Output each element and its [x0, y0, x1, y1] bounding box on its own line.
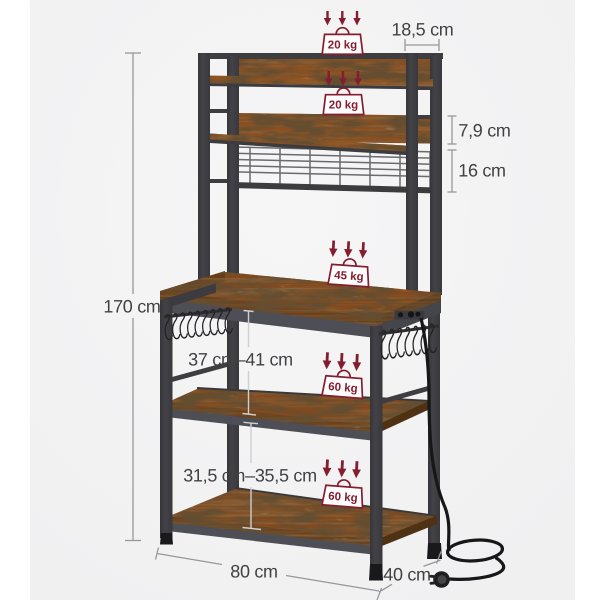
svg-text:60 kg: 60 kg	[328, 381, 358, 395]
svg-text:170 cm: 170 cm	[103, 297, 160, 317]
svg-text:20 kg: 20 kg	[329, 100, 358, 112]
svg-text:60 kg: 60 kg	[328, 490, 358, 504]
svg-text:18,5 cm: 18,5 cm	[392, 20, 454, 40]
svg-text:37 cm–41 cm: 37 cm–41 cm	[188, 350, 293, 370]
svg-text:20 kg: 20 kg	[328, 39, 357, 51]
svg-text:16 cm: 16 cm	[458, 161, 506, 181]
svg-text:31,5 cm–35,5 cm: 31,5 cm–35,5 cm	[183, 466, 317, 486]
svg-text:45 kg: 45 kg	[334, 270, 364, 284]
svg-text:80 cm: 80 cm	[230, 562, 278, 582]
svg-text:40 cm: 40 cm	[383, 565, 431, 585]
svg-text:7,9 cm: 7,9 cm	[458, 121, 510, 141]
